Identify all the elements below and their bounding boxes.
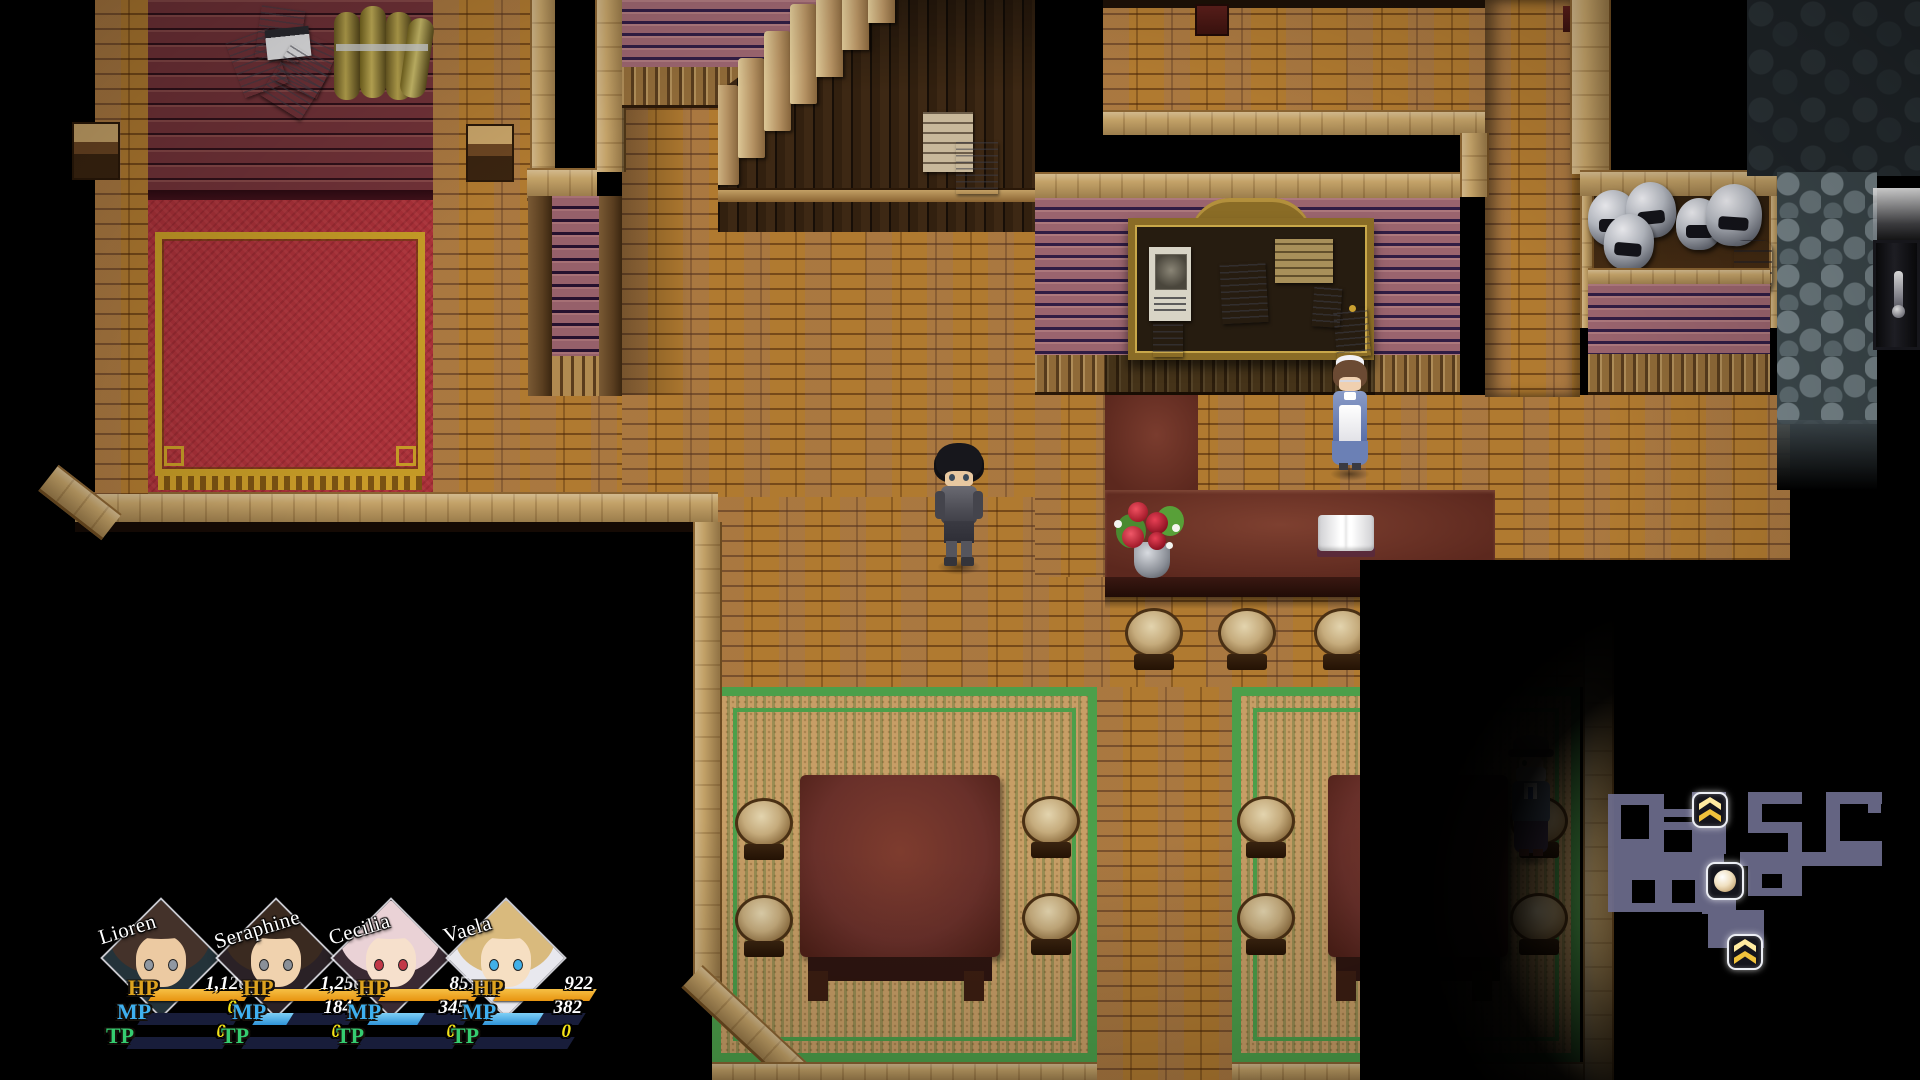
- character-shadow: [1509, 853, 1553, 867]
- avatar-eye: [513, 959, 523, 971]
- furnace-door[interactable]: [1873, 240, 1920, 350]
- player-character[interactable]: [933, 443, 985, 575]
- avatar-eye: [398, 959, 408, 971]
- scroll-band: [336, 44, 428, 51]
- counter-stool: [1218, 608, 1276, 674]
- room-stool: [735, 895, 793, 961]
- floor-edge-left-wall: [693, 522, 722, 990]
- avatar-eye: [144, 959, 154, 971]
- stair-step: [790, 4, 817, 104]
- floor-walkway-bottom[interactable]: [1097, 1040, 1232, 1080]
- floor-edge-right-band: [1610, 560, 1790, 586]
- red-carpet[interactable]: [148, 200, 433, 492]
- counter-stool: [1410, 608, 1468, 674]
- babys-breath: [1166, 542, 1173, 549]
- table-top: [800, 775, 1000, 957]
- side-table: [466, 124, 514, 182]
- corridor-void: [1035, 0, 1103, 172]
- hero-arm: [973, 491, 983, 519]
- stair-step: [868, 0, 895, 23]
- corridor-right-beam: [1570, 0, 1611, 174]
- party-member-card: Vaela HP 922 MP 382 TP 0: [441, 905, 597, 1080]
- door-knob: [1892, 305, 1905, 318]
- paper-pile[interactable]: [232, 6, 342, 112]
- player-marker-icon: [1706, 862, 1744, 900]
- oldman-eye: [1522, 760, 1527, 766]
- stairs-up-icon: [1692, 792, 1728, 828]
- furnace-glow: [1873, 188, 1920, 248]
- hero-boot: [944, 557, 957, 566]
- rose: [1146, 512, 1168, 534]
- oldman-tie: [1528, 787, 1533, 799]
- room-stool: [1022, 796, 1080, 862]
- window-shutter: [552, 196, 599, 358]
- low-table-right: [1328, 775, 1508, 1003]
- player-pearl: [1714, 870, 1736, 892]
- rose: [1122, 526, 1144, 548]
- floor-edge-shadow: [75, 522, 718, 532]
- hero-eye: [963, 474, 969, 481]
- avatar-eye: [259, 959, 269, 971]
- mp-value: 382: [478, 997, 582, 1019]
- party-hud: Lioren HP 1,126 MP 0 TP 0 Seraphin: [0, 905, 640, 1080]
- chevron-up-icon: [1699, 797, 1721, 810]
- table-top: [1328, 775, 1508, 957]
- niche-post-right: [599, 196, 622, 396]
- stair-step: [842, 0, 869, 50]
- hp-value: 922: [489, 973, 593, 995]
- hero-boot: [961, 557, 974, 566]
- slate-wall: [1747, 0, 1920, 176]
- minimap: [1598, 784, 1898, 984]
- avatar-eye: [374, 959, 384, 971]
- maid-skirt: [1332, 441, 1368, 465]
- board-notice[interactable]: [1219, 262, 1268, 324]
- staircase[interactable]: [718, 0, 1035, 232]
- chevron-up-icon: [1699, 809, 1721, 822]
- cobblestone-wall: [1777, 172, 1877, 424]
- table-foot: [1472, 971, 1492, 1001]
- rose: [1148, 532, 1166, 550]
- bulletin-board[interactable]: [1128, 218, 1374, 360]
- flower-vase[interactable]: [1114, 498, 1186, 580]
- wall-note-white[interactable]: [956, 142, 998, 194]
- brick-pillar: [1485, 0, 1580, 397]
- rose: [1128, 502, 1148, 522]
- room-stool: [1237, 893, 1295, 959]
- floor-walkway-center[interactable]: [1097, 687, 1232, 1080]
- wanted-portrait: [1155, 254, 1187, 290]
- board-note[interactable]: [1153, 323, 1183, 357]
- counter-stool: [1125, 608, 1183, 674]
- oldman-shoe: [1533, 849, 1543, 856]
- hero-arm: [935, 491, 945, 519]
- avatar-eye: [283, 959, 293, 971]
- floor-corridor-top[interactable]: [1103, 0, 1485, 112]
- armor-wainscot: [1588, 354, 1770, 395]
- corridor-void-lower: [1103, 135, 1460, 174]
- maid-collar: [1344, 392, 1356, 400]
- chevron-up-icon: [1734, 939, 1756, 952]
- stair-step: [816, 0, 843, 77]
- counter-front: [1105, 577, 1495, 597]
- stair-step: [764, 31, 791, 131]
- scroll: [334, 12, 360, 100]
- maid-glasses: [1340, 380, 1360, 388]
- room-stool: [735, 798, 793, 864]
- carpet-corner-emblem: [396, 446, 416, 466]
- bedroom-left-wall: [95, 0, 148, 494]
- npc-old-man[interactable]: [1507, 735, 1555, 867]
- babys-breath: [1172, 524, 1180, 532]
- tp-value: 0: [467, 1021, 571, 1043]
- floor-upper-left[interactable]: [433, 0, 530, 497]
- carpet-gold-border: [155, 232, 425, 476]
- table-foot: [1336, 971, 1356, 1001]
- scroll: [360, 6, 386, 98]
- wanted-poster[interactable]: [1149, 247, 1191, 321]
- corridor-top-shelf: [1103, 0, 1485, 8]
- carpet-corner-emblem: [164, 446, 184, 466]
- babys-breath: [1114, 520, 1122, 528]
- oldman-hat-brim: [1508, 749, 1554, 757]
- carpet-fringe: [158, 476, 422, 490]
- board-notice-tan[interactable]: [1275, 239, 1333, 283]
- cobblestone-fade: [1777, 420, 1877, 490]
- stair-step: [718, 85, 739, 185]
- character-shadow: [1330, 467, 1370, 481]
- low-table-left: [800, 775, 1000, 1003]
- board-note[interactable]: [1333, 308, 1371, 359]
- shutter-fringe: [552, 356, 599, 396]
- game-viewport: Lioren HP 1,126 MP 0 TP 0 Seraphin: [0, 0, 1920, 1080]
- book-page-left: [1318, 515, 1346, 551]
- oldman-shoe: [1519, 849, 1529, 856]
- wanted-text-lines: [1154, 295, 1186, 315]
- hero-eye: [949, 474, 955, 481]
- room-stool: [1510, 893, 1568, 959]
- counter-leg: [1105, 395, 1198, 495]
- niche-post-left: [528, 196, 552, 396]
- book-page-right: [1346, 515, 1374, 551]
- hero-armor: [941, 486, 977, 524]
- room-stool: [1022, 893, 1080, 959]
- counter-stool: [1314, 608, 1372, 674]
- open-book[interactable]: [1317, 513, 1375, 559]
- avatar-eye: [489, 959, 499, 971]
- side-table: [72, 122, 120, 180]
- armor-wall: [1588, 284, 1770, 354]
- niche-shadow: [622, 95, 692, 395]
- maid-shoe: [1339, 463, 1348, 470]
- corridor-bench: [1195, 4, 1229, 36]
- stair-step: [738, 58, 765, 158]
- table-foot: [808, 971, 828, 1001]
- npc-maid[interactable]: [1328, 355, 1372, 480]
- avatar-eye: [168, 959, 178, 971]
- maid-shoe: [1352, 463, 1361, 470]
- scroll-pile[interactable]: [332, 4, 432, 104]
- table-foot: [964, 971, 984, 1001]
- room-stool: [1237, 796, 1295, 862]
- board-pin: [1349, 305, 1356, 312]
- hero-belt: [944, 521, 974, 543]
- niche-void: [555, 0, 595, 170]
- chevron-up-icon: [1734, 951, 1756, 964]
- stairs-up-icon: [1727, 934, 1763, 970]
- floor-below-niche[interactable]: [530, 390, 622, 497]
- corridor-corner-beam: [1460, 133, 1489, 197]
